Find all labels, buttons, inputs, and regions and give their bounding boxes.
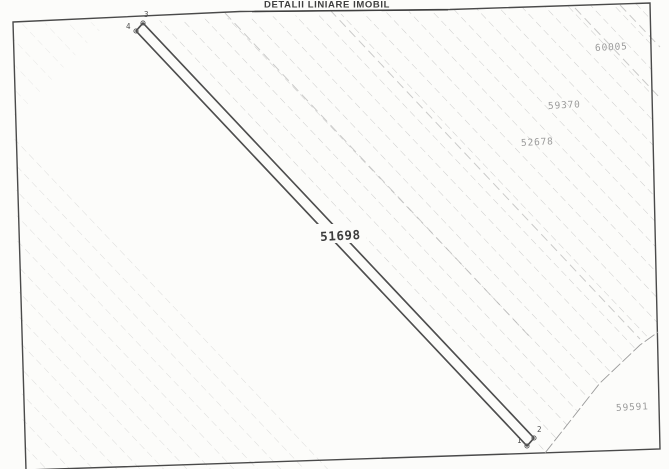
- scanned-cadastral-sheet: DETALII LINIARE IMOBIL 3 4 1 2 51698 600…: [0, 0, 669, 469]
- parcel-label-59370: 59370: [548, 99, 581, 112]
- parcel-label-59591: 59591: [616, 401, 649, 414]
- point-label-4: 4: [126, 22, 131, 31]
- point-label-3: 3: [144, 10, 149, 19]
- parcel-label-60005: 60005: [595, 41, 628, 54]
- point-label-1: 1: [517, 436, 522, 445]
- point-label-2: 2: [537, 425, 542, 434]
- cadastral-map-canvas: DETALII LINIARE IMOBIL 3 4 1 2 51698 600…: [0, 0, 669, 469]
- parcel-label-52678: 52678: [521, 136, 554, 149]
- page-title: DETALII LINIARE IMOBIL: [264, 0, 390, 11]
- parcel-label-main: 51698: [320, 227, 361, 244]
